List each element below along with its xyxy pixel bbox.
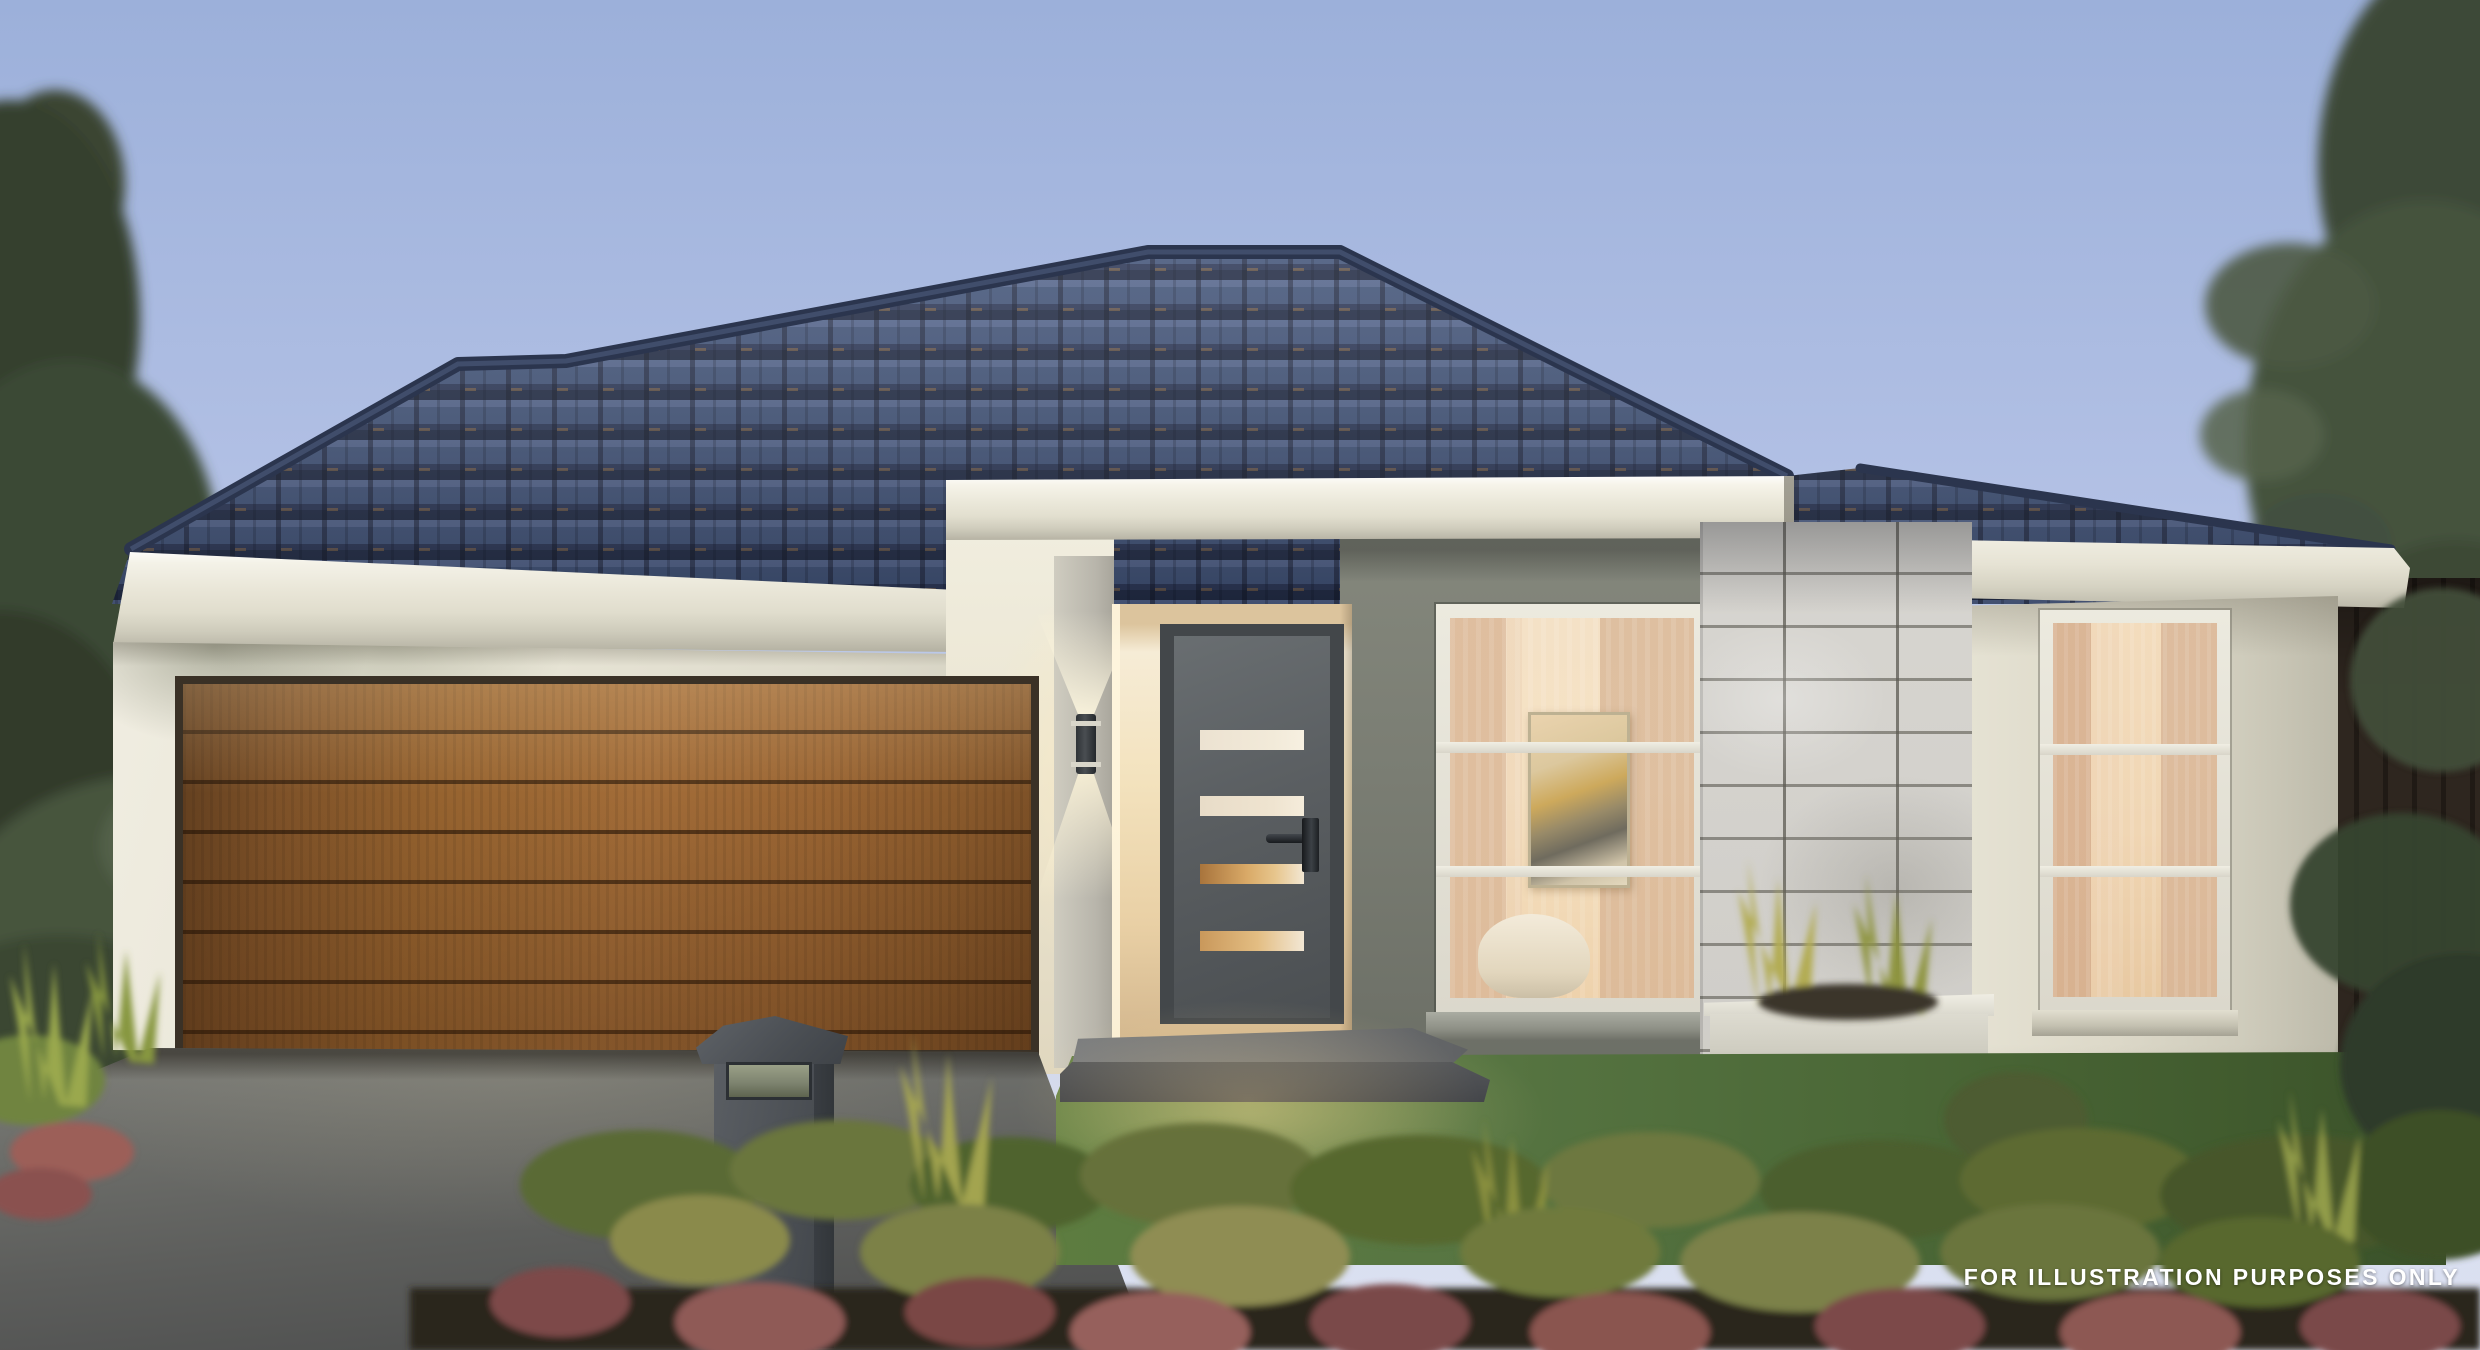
house-render-scene: FOR ILLUSTRATION PURPOSES ONLY [0, 0, 2480, 1350]
watermark-text: FOR ILLUSTRATION PURPOSES ONLY [1770, 1264, 2460, 1291]
foreground-garden [0, 0, 2480, 1350]
